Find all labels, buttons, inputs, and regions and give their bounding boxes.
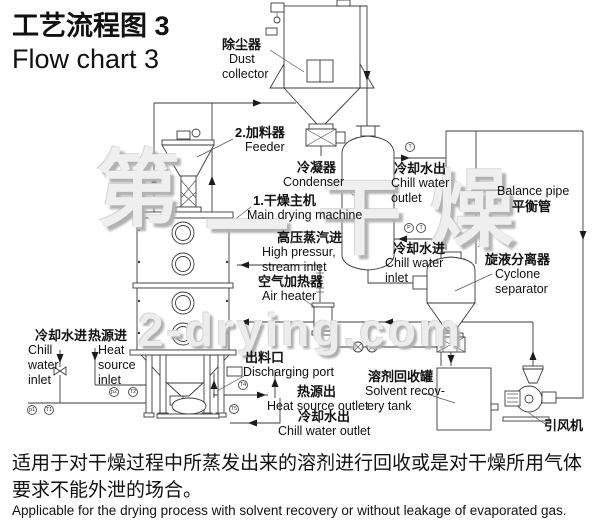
- instrument-tag: T: [416, 223, 426, 233]
- instrument-layer: TPTp1T1p2T2T4T5: [0, 0, 600, 530]
- instrument-tag: T2: [128, 387, 138, 397]
- instrument-tag: T4: [238, 380, 248, 390]
- flow-chart-page: 2-drying.com 第一干燥: [0, 0, 600, 530]
- instrument-tag: p2: [109, 387, 119, 397]
- instrument-tag: p1: [27, 405, 37, 415]
- instrument-tag: P: [404, 223, 414, 233]
- instrument-tag: T1: [44, 405, 54, 415]
- instrument-tag: T5: [229, 404, 239, 414]
- instrument-tag: T: [405, 142, 415, 152]
